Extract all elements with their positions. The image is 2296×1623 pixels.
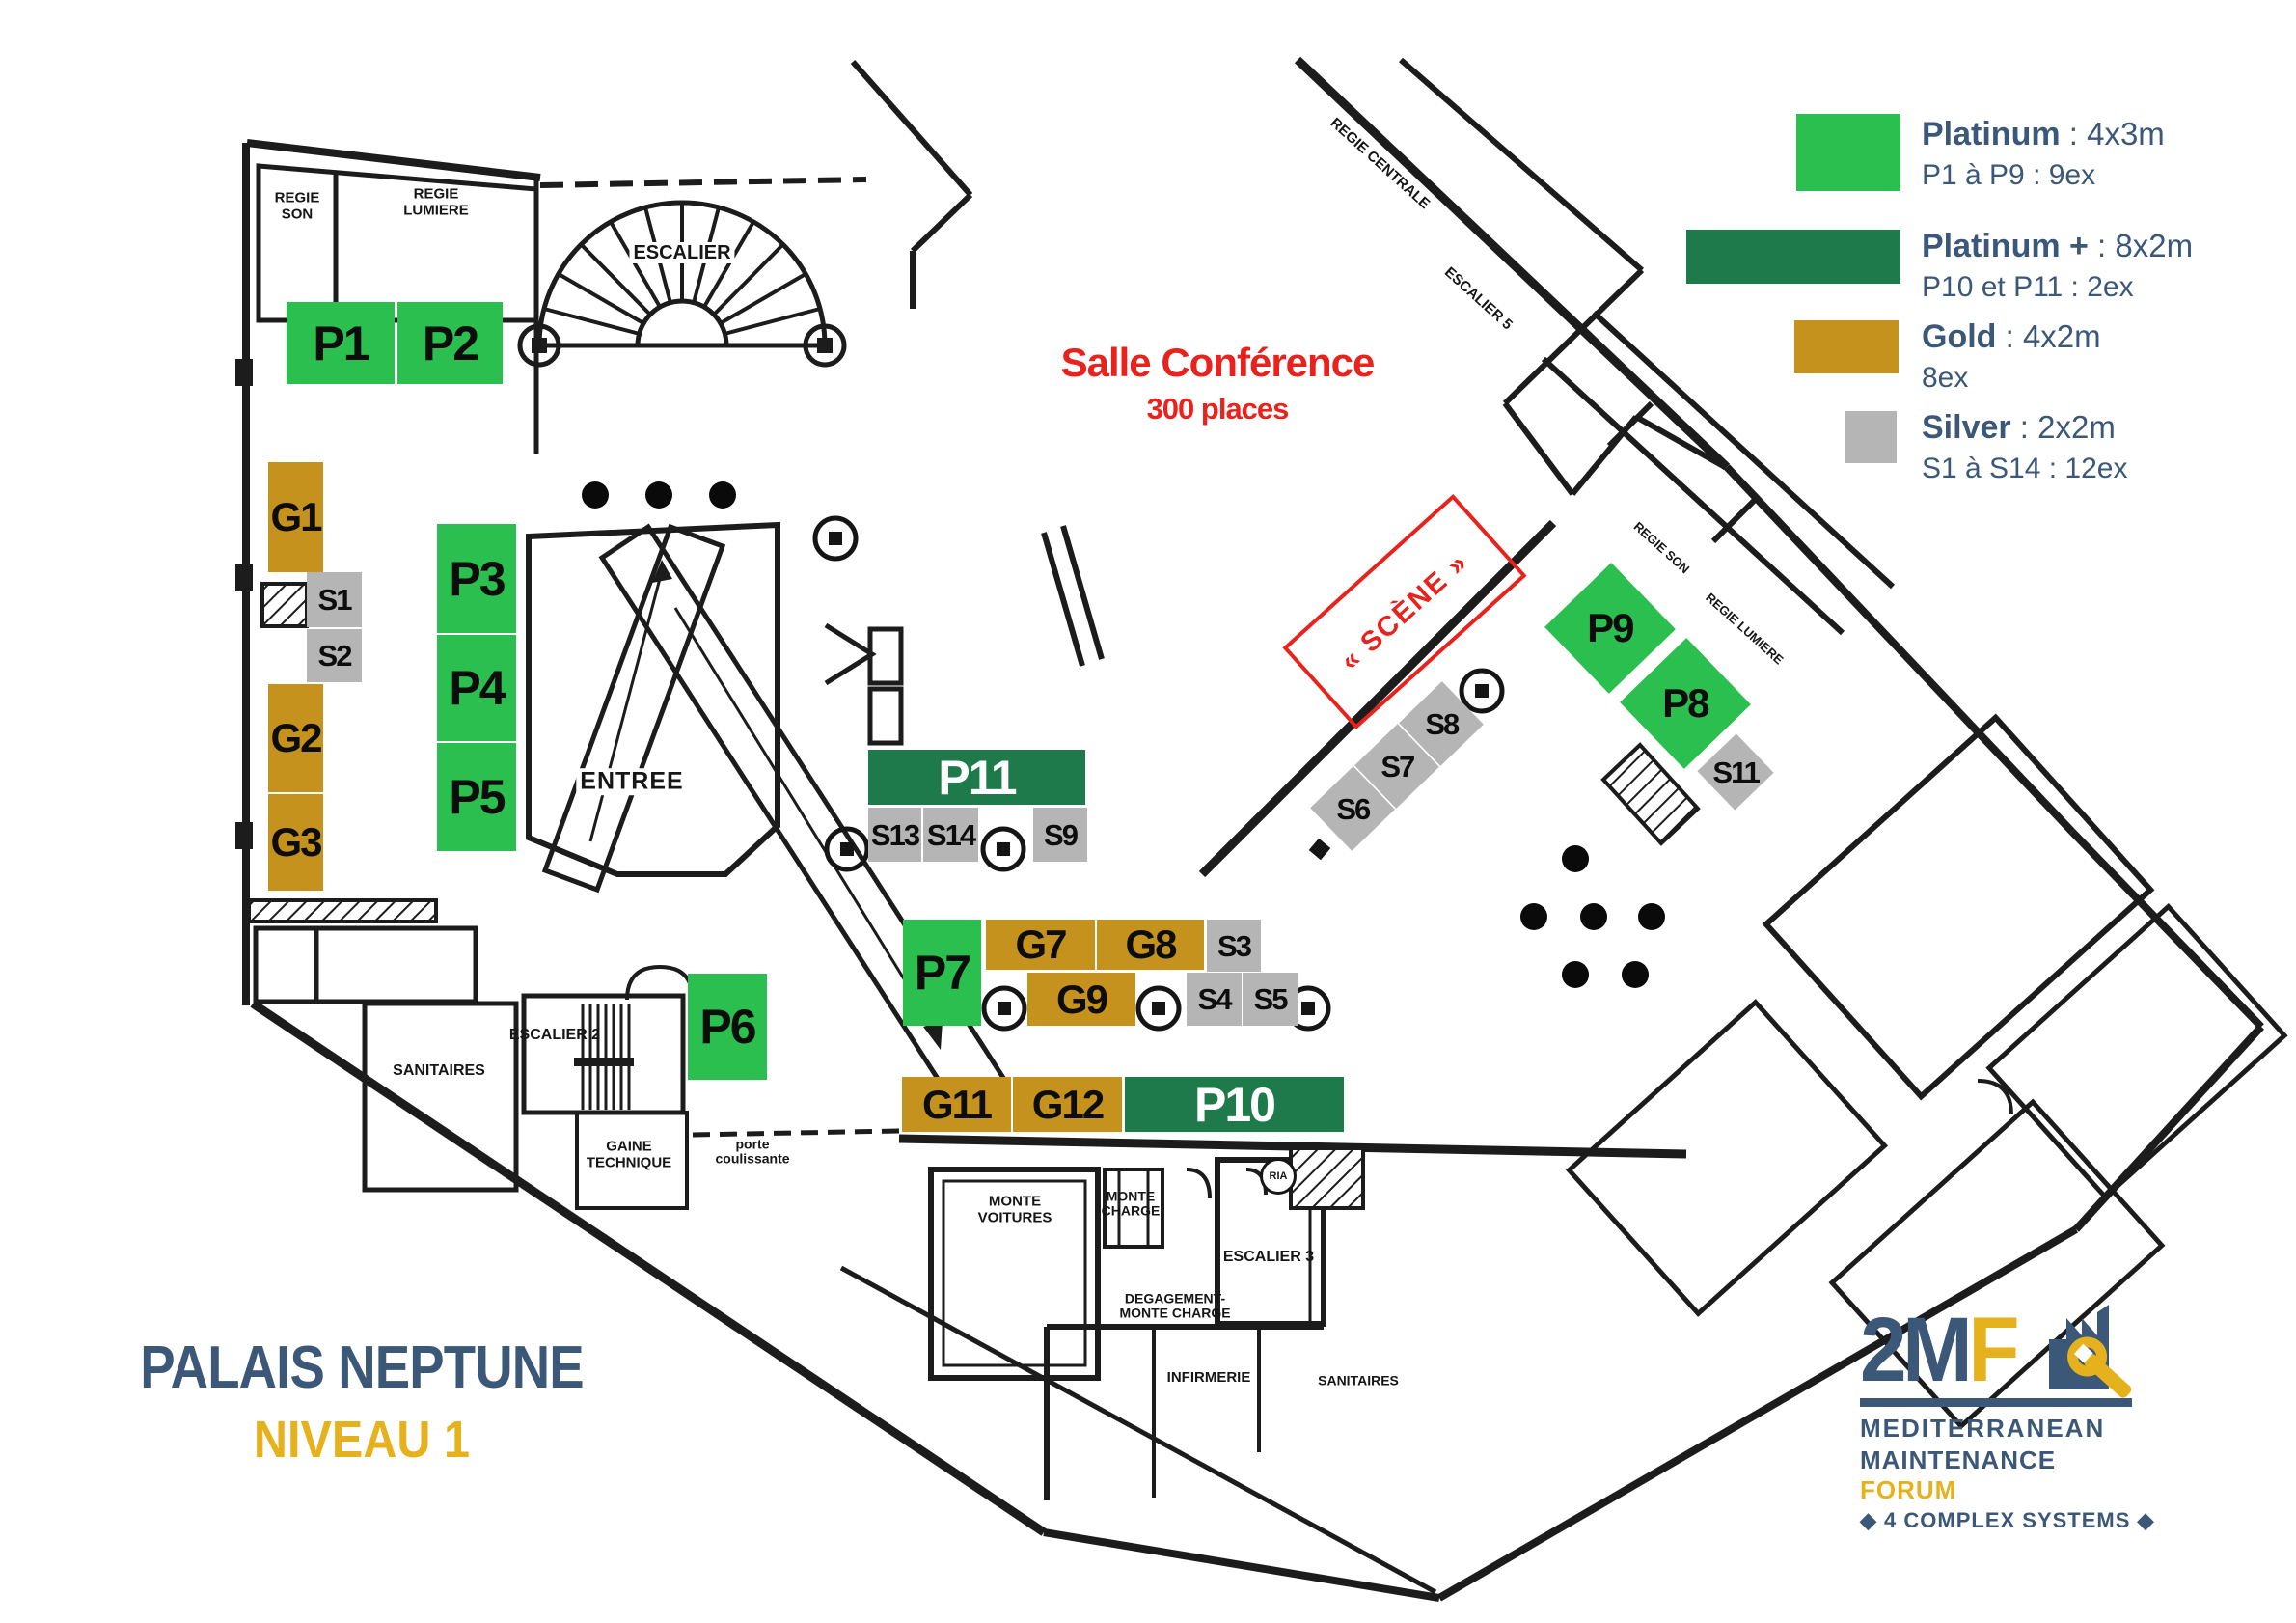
legend-platinum-plus-detail: P10 et P11 : 2ex bbox=[1922, 271, 2193, 304]
logo-forum: FORUM bbox=[1860, 1475, 1956, 1504]
booth-g12: G12 bbox=[1013, 1077, 1122, 1132]
legend-row-platinum-plus: Platinum + : 8x2m P10 et P11 : 2ex bbox=[1922, 228, 2193, 304]
legend-gold-detail: 8ex bbox=[1922, 362, 2101, 395]
legend-silver-spec: : 2x2m bbox=[2020, 409, 2116, 445]
booth-g9: G9 bbox=[1027, 973, 1135, 1026]
booth-g1: G1 bbox=[268, 462, 323, 572]
factory-wrench-icon bbox=[2045, 1301, 2161, 1407]
booth-g2: G2 bbox=[268, 684, 323, 792]
booth-p2-label: P2 bbox=[423, 319, 478, 368]
booth-p6-label: P6 bbox=[699, 1003, 754, 1051]
booth-s5: S5 bbox=[1243, 973, 1298, 1026]
bottom-centre-rooms bbox=[693, 1131, 1686, 1592]
legend-swatch-gold bbox=[1794, 320, 1899, 373]
booth-p4: P4 bbox=[437, 635, 516, 741]
logo-line3: ◆ 4 COMPLEX SYSTEMS ◆ bbox=[1860, 1508, 2159, 1533]
plan-title-line2: NIVEAU 1 bbox=[119, 1410, 605, 1470]
ria-text: RIA bbox=[1270, 1170, 1288, 1182]
logo-mark-2m: 2M bbox=[1860, 1299, 1968, 1401]
label-sanitaires-r: SANITAIRES bbox=[1318, 1373, 1399, 1388]
booth-p2: P2 bbox=[397, 302, 503, 384]
booth-s4: S4 bbox=[1187, 973, 1242, 1026]
booth-s6-label: S6 bbox=[1336, 794, 1369, 824]
label-gaine-technique: GAINE TECHNIQUE bbox=[586, 1140, 672, 1171]
plan-title: PALAIS NEPTUNE NIVEAU 1 bbox=[92, 1334, 632, 1470]
booth-p7-label: P7 bbox=[915, 949, 970, 997]
booth-p5: P5 bbox=[437, 743, 516, 851]
booth-p11-label: P11 bbox=[938, 754, 1015, 802]
booth-g11-label: G11 bbox=[922, 1085, 991, 1125]
logo-line1: MEDITERRANEAN bbox=[1860, 1414, 2159, 1444]
right-rooms bbox=[1544, 313, 2284, 1426]
label-regie-son-tl: REGIE SON bbox=[263, 191, 331, 223]
label-ria: RIA bbox=[1260, 1158, 1297, 1195]
booth-g2-label: G2 bbox=[270, 718, 320, 758]
logo-line2: MAINTENANCE FORUM bbox=[1860, 1445, 2159, 1505]
legend-row-silver: Silver : 2x2m S1 à S14 : 12ex bbox=[1922, 409, 2128, 485]
booth-p10-label: P10 bbox=[1194, 1081, 1274, 1129]
legend-gold-spec: : 4x2m bbox=[2006, 318, 2101, 354]
legend-swatch-platinum-plus bbox=[1686, 230, 1900, 284]
label-escalier: ESCALIER bbox=[629, 242, 734, 263]
legend-platinum-plus-name: Platinum + bbox=[1922, 228, 2089, 264]
legend-silver-detail: S1 à S14 : 12ex bbox=[1922, 453, 2128, 485]
booth-s3-label: S3 bbox=[1217, 931, 1250, 961]
label-sanitaires-l: SANITAIRES bbox=[393, 1062, 485, 1080]
booth-s1: S1 bbox=[307, 572, 362, 627]
booth-p5-label: P5 bbox=[449, 773, 504, 821]
booth-g11: G11 bbox=[902, 1077, 1011, 1132]
legend-platinum-spec: : 4x3m bbox=[2069, 116, 2165, 151]
booth-g7-label: G7 bbox=[1015, 924, 1065, 965]
booth-p11: P11 bbox=[868, 750, 1085, 805]
logo-mark-f: F bbox=[1968, 1299, 2015, 1401]
conference-capacity: 300 places bbox=[1025, 392, 1410, 426]
booth-s5-label: S5 bbox=[1254, 984, 1287, 1014]
booth-s13: S13 bbox=[868, 808, 921, 862]
booth-s13-label: S13 bbox=[871, 820, 918, 850]
booth-p10: P10 bbox=[1125, 1077, 1344, 1132]
booth-s14-label: S14 bbox=[927, 820, 974, 850]
booth-g9-label: G9 bbox=[1056, 979, 1107, 1020]
booth-p1-label: P1 bbox=[313, 319, 368, 368]
booth-s4-label: S4 bbox=[1198, 984, 1231, 1014]
booth-g12-label: G12 bbox=[1032, 1085, 1103, 1125]
booth-g8: G8 bbox=[1097, 920, 1204, 970]
booth-s14: S14 bbox=[923, 808, 978, 862]
booth-p3: P3 bbox=[437, 524, 516, 633]
booth-s9-label: S9 bbox=[1044, 820, 1077, 850]
legend-platinum-detail: P1 à P9 : 9ex bbox=[1922, 159, 2165, 192]
label-porte-coulissante: porte coulissante bbox=[704, 1138, 801, 1168]
legend-platinum-name: Platinum bbox=[1922, 116, 2061, 152]
label-regie-lumiere-tl: REGIE LUMIERE bbox=[396, 187, 477, 219]
legend-silver-name: Silver bbox=[1922, 409, 2011, 446]
booth-p6: P6 bbox=[688, 974, 767, 1080]
stair-fan-icon bbox=[520, 179, 866, 365]
booth-p3-label: P3 bbox=[449, 555, 504, 603]
booth-g3: G3 bbox=[268, 794, 323, 891]
legend-swatch-silver bbox=[1845, 411, 1897, 463]
label-escalier-2: ESCALIER 2 bbox=[509, 1027, 600, 1044]
booth-g7: G7 bbox=[986, 920, 1095, 970]
booth-s8-label: S8 bbox=[1425, 709, 1458, 739]
label-entree: ENTREE bbox=[576, 768, 687, 795]
legend-platinum-plus-spec: : 8x2m bbox=[2097, 228, 2193, 263]
booth-p9-label: P9 bbox=[1587, 608, 1632, 648]
legend-gold-name: Gold bbox=[1922, 318, 1996, 355]
booth-p8-label: P8 bbox=[1662, 683, 1708, 724]
booth-s9: S9 bbox=[1033, 808, 1087, 862]
booth-g8-label: G8 bbox=[1125, 924, 1175, 965]
booth-p1: P1 bbox=[287, 302, 395, 384]
legend-row-platinum: Platinum : 4x3m P1 à P9 : 9ex bbox=[1922, 116, 2165, 192]
booth-s11-label: S11 bbox=[1712, 757, 1758, 787]
label-degagement: DEGAGEMENT- MONTE CHARGE bbox=[1117, 1292, 1233, 1322]
booth-s7-label: S7 bbox=[1380, 752, 1413, 782]
legend-swatch-platinum bbox=[1796, 114, 1900, 191]
plan-title-line1: PALAIS NEPTUNE bbox=[124, 1334, 600, 1402]
conference-hall-label: Salle Conférence 300 places bbox=[1025, 340, 1410, 426]
booth-p7: P7 bbox=[903, 920, 981, 1026]
booth-s2: S2 bbox=[307, 629, 362, 682]
legend-row-gold: Gold : 4x2m 8ex bbox=[1922, 318, 2101, 395]
booth-g1-label: G1 bbox=[270, 497, 320, 537]
booth-s3: S3 bbox=[1207, 920, 1261, 972]
conference-title: Salle Conférence bbox=[1025, 340, 1410, 386]
logo-maintenance: MAINTENANCE bbox=[1860, 1445, 2056, 1474]
label-monte-voitures: MONTE VOITURES bbox=[970, 1195, 1061, 1226]
label-escalier-3: ESCALIER 3 bbox=[1223, 1249, 1314, 1266]
booth-s2-label: S2 bbox=[318, 641, 351, 671]
label-infirmerie: INFIRMERIE bbox=[1167, 1370, 1251, 1387]
booth-p4-label: P4 bbox=[449, 664, 504, 712]
label-monte-charge: MONTE CHARGE bbox=[1097, 1190, 1164, 1220]
booth-g3-label: G3 bbox=[270, 822, 320, 863]
booth-s1-label: S1 bbox=[318, 585, 351, 615]
